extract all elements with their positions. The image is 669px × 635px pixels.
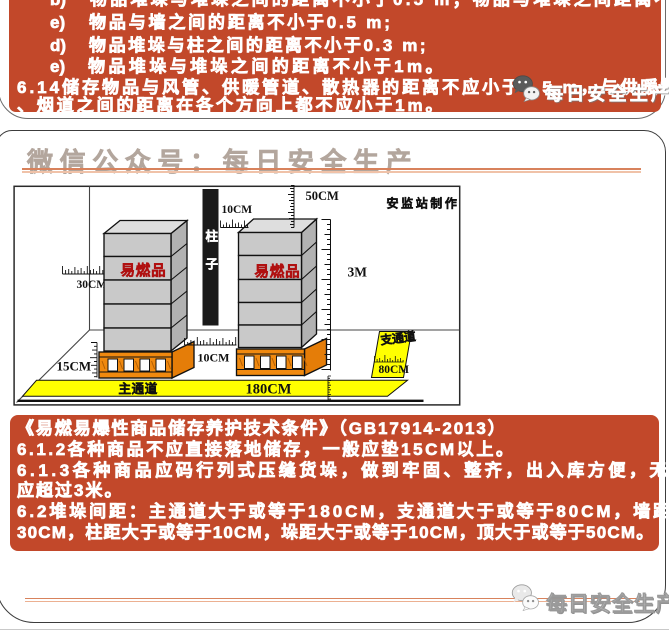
svg-text:30CM: 30CM [76, 279, 107, 291]
svg-text:3M: 3M [347, 264, 367, 279]
svg-text:15CM: 15CM [56, 358, 91, 373]
svg-text:50CM: 50CM [305, 189, 339, 203]
svg-text:易燃品: 易燃品 [120, 261, 166, 279]
svg-text:180CM: 180CM [245, 381, 291, 397]
svg-text:柱: 柱 [205, 228, 218, 243]
svg-text:子: 子 [205, 257, 218, 271]
svg-text:80CM: 80CM [378, 364, 409, 376]
svg-text:主通道: 主通道 [118, 381, 157, 396]
svg-text:易燃品: 易燃品 [254, 262, 300, 280]
svg-text:安监站制作: 安监站制作 [386, 195, 459, 210]
svg-text:10CM: 10CM [197, 350, 229, 364]
svg-text:10CM: 10CM [221, 204, 252, 216]
